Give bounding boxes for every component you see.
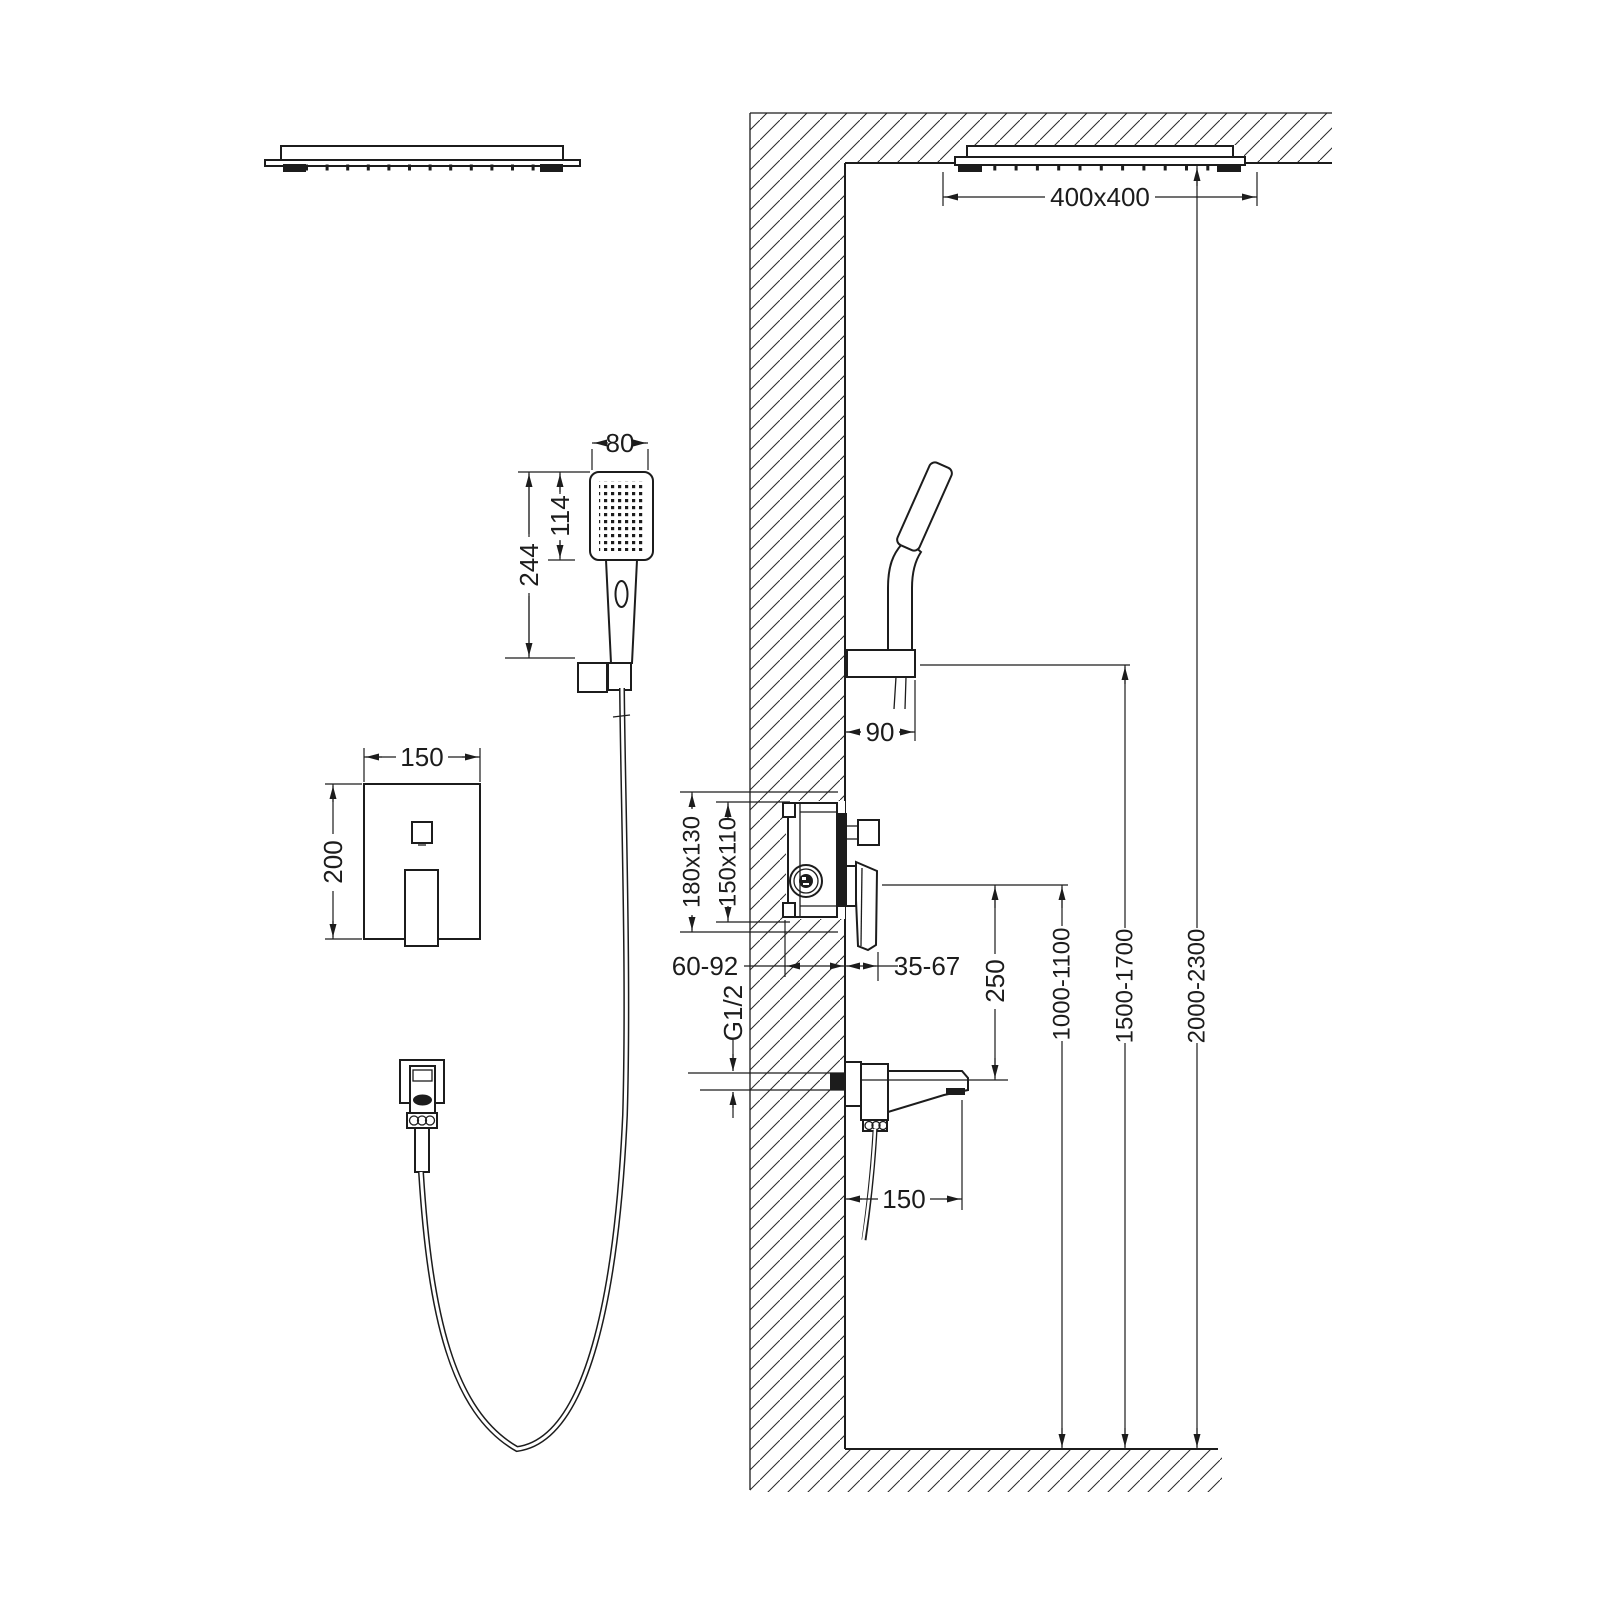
technical-drawing-page: 400x400 80 114 244: [0, 0, 1600, 1600]
spout-bracket: [861, 1064, 888, 1120]
valve-trim-front-view: [364, 784, 480, 946]
overhead-nozzle-cluster-left: [283, 164, 306, 172]
hand-shower-handle: [606, 560, 637, 663]
cartridge-mark: [803, 883, 809, 885]
wall-holder-block: [847, 650, 915, 677]
valve-lug-top: [783, 803, 795, 817]
dim-label-height-holder: 1500-1700: [1112, 929, 1139, 1044]
diverter-knob-side: [858, 820, 879, 845]
overhead-installed-plate: [955, 157, 1245, 165]
holder-shower-head: [895, 461, 954, 553]
diverter-button: [412, 822, 432, 843]
installed-nozzle-cluster-right: [1217, 165, 1241, 172]
holder-hose-stub: [905, 677, 906, 709]
dim-depth-out-wall: 35-67: [845, 951, 960, 981]
dim-label-plate-height: 200: [318, 840, 348, 883]
dim-label-depth-in-wall: 60-92: [672, 951, 739, 981]
lever-base: [846, 866, 856, 906]
elbow-nut: [407, 1113, 437, 1128]
dim-label-plate-width: 150: [400, 742, 443, 772]
elbow-outlet-hole: [413, 1095, 432, 1106]
installed-nozzle-cluster-left: [958, 165, 982, 172]
overhead-installed-body: [967, 146, 1233, 157]
cartridge-mark: [802, 877, 806, 880]
dim-label-thread: G1/2: [718, 985, 748, 1041]
dim-height-valve: 1000-1100: [1046, 885, 1078, 1449]
overhead-shower-installed: [955, 145, 1245, 172]
bath-spout-section: [830, 1062, 968, 1242]
hand-shower-hose-connector: [608, 663, 631, 690]
installation-drawing: 400x400 80 114 244: [0, 0, 1600, 1600]
dim-label-handshower-length: 244: [514, 543, 544, 586]
dim-label-spout-reach: 150: [882, 1184, 925, 1214]
dim-label-height-valve: 1000-1100: [1049, 928, 1076, 1041]
holder-shower-handle: [888, 539, 921, 661]
dim-label-valve-inner: 150x110: [715, 817, 742, 907]
dim-label-handshower-width: 80: [606, 428, 635, 458]
overhead-nozzle-cluster-right: [540, 164, 563, 172]
dim-height-holder: 1500-1700: [1109, 665, 1141, 1449]
valve-lug-bottom: [783, 903, 795, 917]
overhead-body: [281, 146, 563, 160]
spout-flange: [845, 1062, 861, 1106]
overhead-shower-side-view: [265, 146, 580, 172]
valve-box: [788, 803, 837, 917]
hand-shower-holder-view: [847, 461, 954, 709]
dim-handshower-width: 80: [592, 428, 648, 470]
mixer-lever-side: [856, 862, 877, 950]
spout-thread-connection: [830, 1073, 845, 1090]
dim-plate-height: 200: [318, 784, 362, 939]
dim-label-depth-out-wall: 35-67: [894, 951, 961, 981]
floor-hatch: [845, 1449, 1222, 1492]
holder-hose-stub: [894, 677, 896, 709]
dim-plate-width: 150: [364, 742, 480, 782]
hand-shower-button: [616, 581, 628, 607]
dim-overhead-size: 400x400: [943, 172, 1257, 212]
dim-label-overhead-size: 400x400: [1050, 182, 1150, 212]
valve-cartridge-core: [799, 874, 813, 888]
dim-label-spout-drop: 250: [980, 959, 1010, 1002]
hand-shower-nozzle-grid: [599, 481, 645, 551]
hose-ferrule: [415, 1128, 429, 1172]
wall-outlet-elbow: [400, 1060, 444, 1172]
dim-label-handshower-face: 114: [545, 495, 575, 536]
dim-label-valve-outer: 180x130: [679, 816, 706, 908]
dim-spout-drop: 250: [980, 885, 1010, 1080]
hand-shower-bracket: [578, 663, 607, 692]
spout-aerator: [946, 1088, 965, 1095]
dim-label-holder-reach: 90: [866, 717, 895, 747]
dim-label-height-overhead: 2000-2300: [1184, 929, 1211, 1044]
trim-lever: [405, 870, 438, 946]
dim-holder-reach: 90: [845, 680, 915, 747]
dim-height-overhead: 2000-2300: [1181, 166, 1213, 1449]
hand-shower-front-view: [578, 472, 653, 692]
elbow-body: [410, 1066, 435, 1113]
